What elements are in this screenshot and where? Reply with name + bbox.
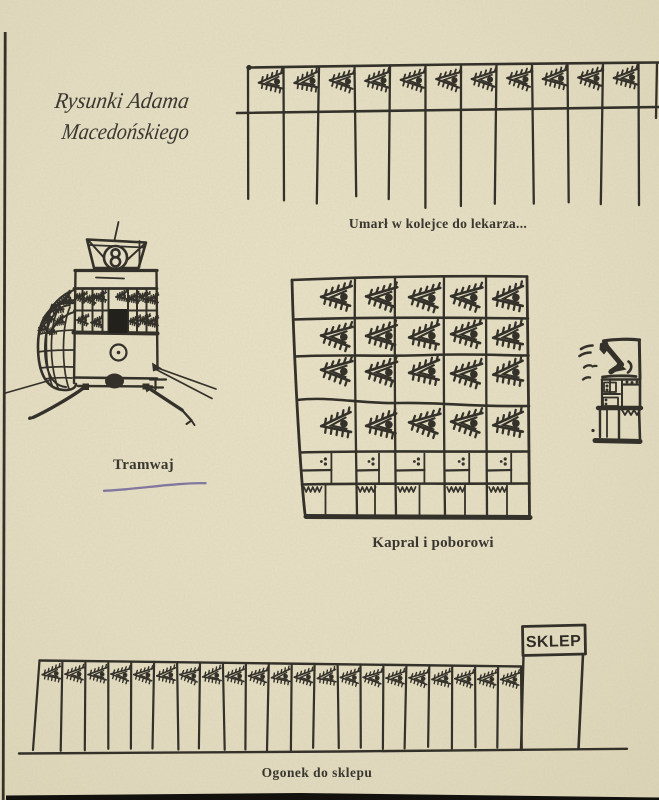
svg-text:Kapral i poborowi: Kapral i poborowi bbox=[372, 535, 493, 551]
svg-text:Umarł w kolejce do lekarza...: Umarł w kolejce do lekarza... bbox=[349, 216, 527, 231]
svg-text:Macedońskiego: Macedońskiego bbox=[59, 119, 190, 144]
svg-text:Ogonek do sklepu: Ogonek do sklepu bbox=[262, 765, 373, 780]
svg-text:SKLEP: SKLEP bbox=[526, 633, 582, 651]
svg-text:Tramwaj: Tramwaj bbox=[113, 457, 174, 473]
svg-text:Rysunki Adama: Rysunki Adama bbox=[52, 88, 190, 113]
